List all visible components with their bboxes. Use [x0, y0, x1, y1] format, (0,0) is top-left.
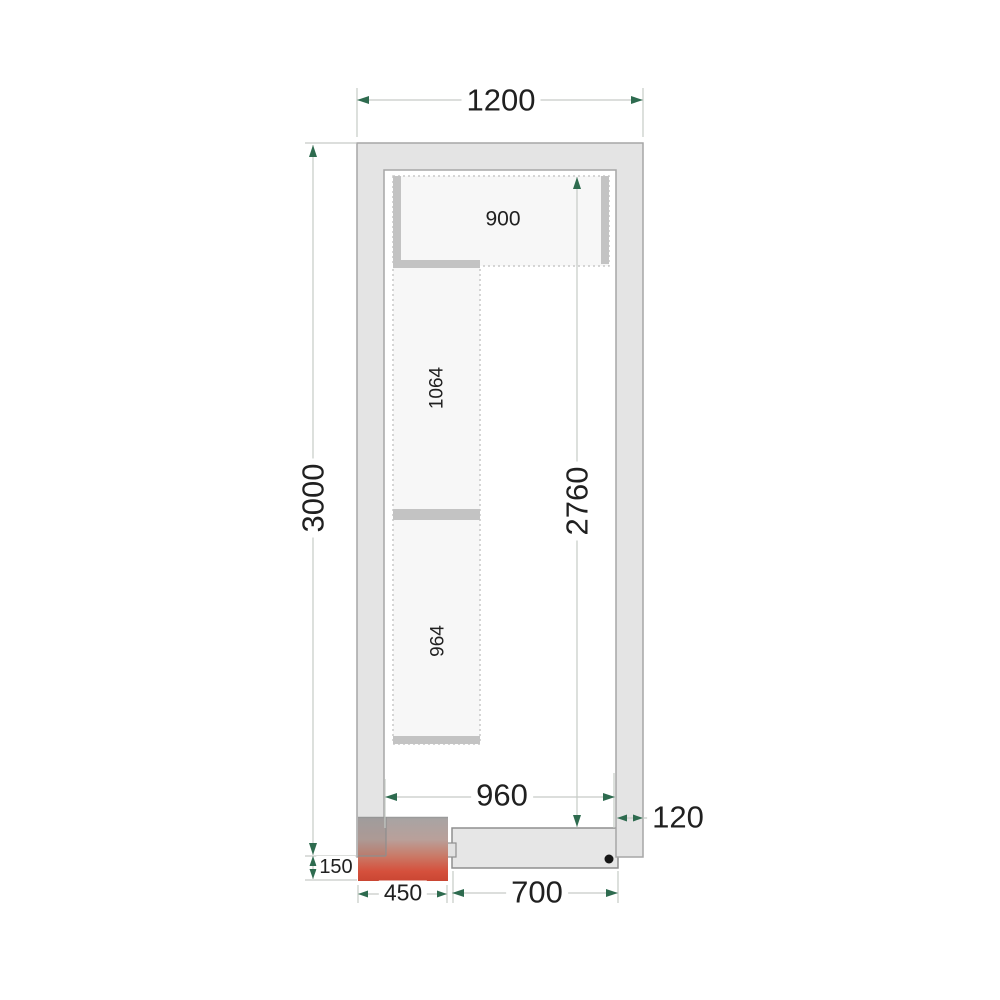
shelf-bar-upper	[393, 260, 480, 268]
wall-under-unit-shade	[358, 817, 386, 856]
dim-label-inner-length: 2760	[561, 462, 594, 541]
dim-label-unit-width: 450	[379, 881, 427, 906]
dim-label-unit-protrusion: 150	[316, 856, 355, 878]
dim-label-shelf-top-width: 900	[480, 208, 525, 231]
shelf-bar-lower	[393, 736, 480, 744]
dim-label-shelf-left-upper: 1064	[427, 362, 448, 414]
dim-label-wall-thickness: 120	[647, 801, 709, 834]
dim-label-outer-width: 1200	[462, 84, 541, 117]
dim-label-shelf-left-lower: 964	[428, 620, 449, 662]
dim-label-door-width: 700	[506, 876, 568, 909]
door-hinge-dot	[605, 855, 614, 864]
shelf-bar-middle	[393, 509, 480, 520]
shelf-left	[393, 266, 480, 744]
cold-room-plan-canvas: 1200 3000 2760 900 1064 964 960 120 150 …	[0, 0, 1000, 1000]
dim-label-outer-length: 3000	[297, 459, 330, 538]
plan-drawing-svg	[0, 0, 1000, 1000]
shelf-bar-top-left	[393, 176, 401, 264]
shelf-bar-top-right	[601, 176, 609, 264]
dim-label-inner-width: 960	[471, 779, 533, 812]
door-leaf	[452, 828, 618, 868]
